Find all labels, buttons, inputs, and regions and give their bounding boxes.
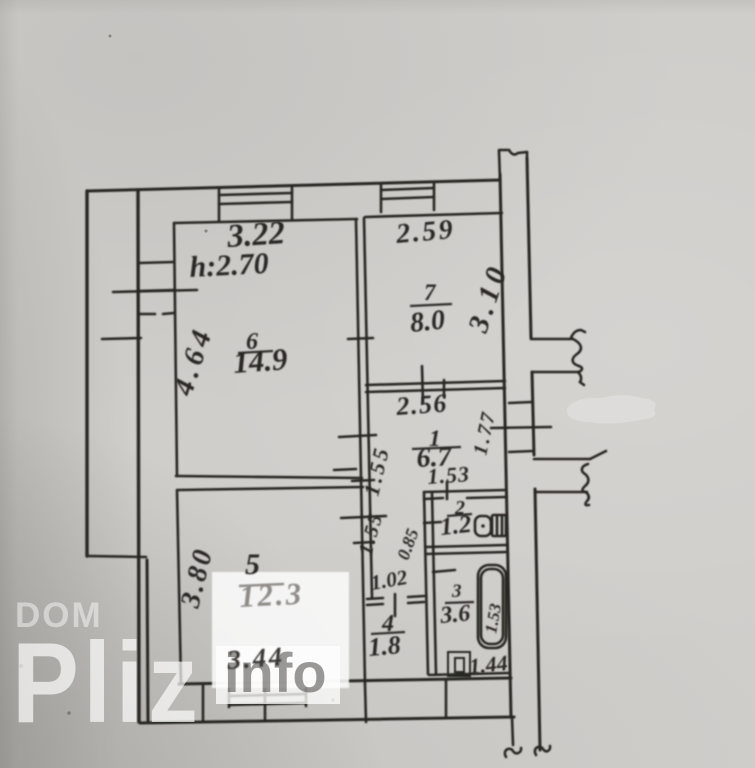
svg-text:Pliz: Pliz [12,619,202,746]
svg-text:14.9: 14.9 [232,341,289,380]
svg-text:3: 3 [451,581,462,602]
svg-text:1.77: 1.77 [469,408,500,457]
svg-text:h:2.70: h:2.70 [189,247,270,284]
svg-text:1.2: 1.2 [439,511,473,541]
svg-text:12.3: 12.3 [239,576,305,614]
svg-text:1.44: 1.44 [468,650,509,679]
svg-text:1.53: 1.53 [427,461,471,489]
svg-text:1.53: 1.53 [481,602,505,635]
svg-text:0.85: 0.85 [393,526,423,562]
svg-text:7: 7 [424,280,437,305]
svg-text:1.02: 1.02 [369,565,410,595]
svg-text:8.0: 8.0 [408,304,446,338]
svg-text:3.6: 3.6 [438,600,471,629]
svg-text:3.10: 3.10 [462,259,515,337]
svg-text:1.8: 1.8 [367,630,402,662]
svg-text:3.44: 3.44 [225,641,285,675]
svg-text:5: 5 [245,548,260,581]
svg-text:2.56: 2.56 [394,388,448,421]
svg-text:2.59: 2.59 [394,214,456,250]
svg-text:1.55: 1.55 [359,443,395,498]
